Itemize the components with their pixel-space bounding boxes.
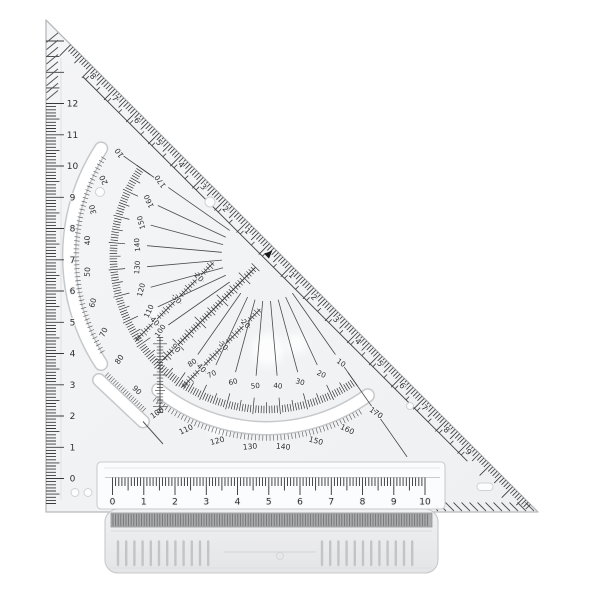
bubble-hole: [96, 188, 105, 197]
ruler-strip-number: 0: [110, 498, 116, 508]
triangle-ruler-scene: 0123456789101112123456781234567892030402…: [0, 0, 600, 600]
left-ruler-number: 1: [70, 443, 76, 453]
reflection-blob: [452, 344, 462, 354]
ruler-strip-number: 10: [419, 498, 431, 508]
left-ruler-number: 12: [67, 100, 78, 110]
protractor-inner-number: 50: [250, 381, 260, 391]
left-ruler-number: 2: [70, 412, 76, 422]
left-ruler-number: 8: [70, 225, 76, 235]
ruler-strip-number: 3: [203, 498, 209, 508]
left-ruler-number: 0: [70, 475, 76, 485]
ruler-strip-number: 2: [172, 498, 178, 508]
protractor-inner-number: 140: [132, 237, 142, 252]
ruler-strip-number: 8: [360, 498, 366, 508]
reflection-blob: [345, 293, 359, 307]
bubble-hole: [84, 489, 92, 497]
left-ruler-number: 6: [70, 287, 76, 297]
bottom-ruler-strip: 012345678910: [97, 462, 445, 509]
ruler-strip-number: 9: [391, 498, 397, 508]
protractor-inner-number: 130: [132, 260, 142, 275]
ruler-strip-number: 7: [328, 498, 334, 508]
grip-base: [105, 509, 438, 573]
product-photo: 0123456789101112123456781234567892030402…: [0, 0, 600, 600]
ruler-strip-number: 5: [266, 498, 272, 508]
protractor-inner-number: 40: [273, 381, 283, 391]
bubble-hole: [205, 197, 215, 207]
ruler-strip-number: 1: [141, 498, 147, 508]
bubble-hole: [71, 489, 79, 497]
protractor-outer-number: 50: [83, 267, 93, 278]
left-ruler-number: 5: [70, 318, 76, 328]
bubble-hole: [407, 403, 414, 410]
pill-hole: [477, 483, 493, 491]
left-ruler-number: 4: [70, 350, 76, 360]
reflection-blob: [252, 334, 284, 366]
left-ruler-number: 10: [67, 162, 79, 172]
ruler-strip-number: 6: [297, 498, 303, 508]
protractor-outer-number: 40: [83, 235, 93, 246]
ruler-strip-number: 4: [235, 498, 241, 508]
left-ruler-number: 9: [70, 193, 76, 203]
left-ruler-number: 3: [70, 381, 76, 391]
protractor-outer-number: 130: [242, 442, 257, 452]
left-ruler-number: 11: [67, 131, 78, 141]
protractor-outer-number: 140: [276, 442, 291, 452]
